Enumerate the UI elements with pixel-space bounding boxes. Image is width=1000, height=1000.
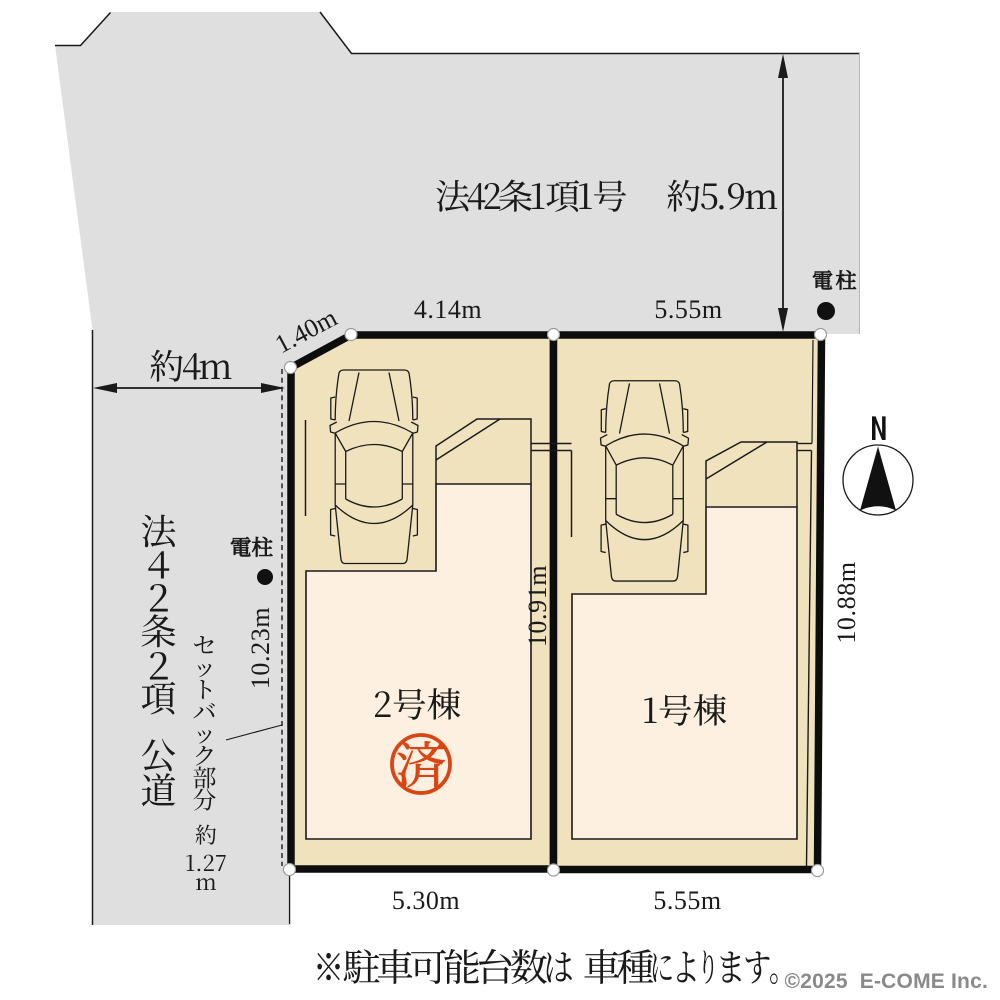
svg-text:5.30m: 5.30m: [392, 886, 460, 915]
svg-text:5.55m: 5.55m: [653, 886, 721, 915]
svg-text:10.88m: 10.88m: [832, 561, 861, 643]
svg-text:©2025 E-COME Inc.: ©2025 E-COME Inc.: [785, 970, 988, 993]
svg-text:4.14m: 4.14m: [414, 295, 482, 324]
svg-text:10.23m: 10.23m: [246, 607, 275, 689]
svg-text:10.91m: 10.91m: [523, 565, 552, 647]
svg-text:5.55m: 5.55m: [654, 295, 722, 324]
